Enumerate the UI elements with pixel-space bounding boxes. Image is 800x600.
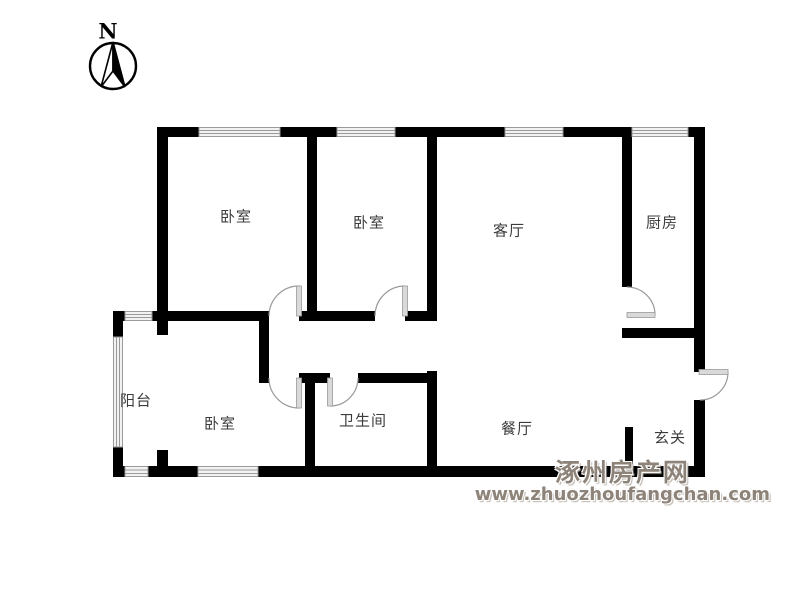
door-arc xyxy=(269,286,299,316)
wall-segment xyxy=(563,127,632,137)
wall-segment xyxy=(427,127,437,321)
door-leaf xyxy=(403,286,408,316)
watermark-site-name: 涿州房产网 xyxy=(475,460,770,486)
watermark: 涿州房产网 www.zhuozhoufangchan.com xyxy=(475,460,770,505)
floorplan-page: N 卧室 卧室 客厅 厨房 阳台 卧室 卫生间 餐厅 玄关 涿州房产网 www.… xyxy=(0,0,800,600)
room-label-bedroom-2: 卧室 xyxy=(353,212,385,233)
compass-north-label: N xyxy=(98,19,117,44)
door-leaf xyxy=(297,378,302,408)
compass-needle-left xyxy=(101,42,113,87)
wall-segment xyxy=(358,373,437,383)
door-arc xyxy=(330,378,358,406)
window xyxy=(199,128,280,137)
door-leaf xyxy=(328,378,333,406)
window xyxy=(632,128,688,137)
door-arc xyxy=(627,287,655,315)
room-label-bedroom-3: 卧室 xyxy=(204,413,236,434)
doors xyxy=(269,286,728,408)
door-arc xyxy=(375,286,405,316)
windows xyxy=(114,128,689,477)
door-leaf xyxy=(297,286,302,316)
walls xyxy=(113,127,705,477)
window xyxy=(337,128,395,137)
wall-segment xyxy=(148,466,198,477)
room-label-balcony: 阳台 xyxy=(120,390,152,411)
floorplan-drawing xyxy=(0,0,800,600)
room-label-bathroom: 卫生间 xyxy=(339,410,387,431)
wall-segment xyxy=(307,127,317,321)
room-label-bedroom-1: 卧室 xyxy=(220,206,252,227)
door-leaf xyxy=(699,370,728,375)
wall-segment xyxy=(157,450,168,477)
wall-segment xyxy=(113,311,123,337)
wall-segment xyxy=(113,447,123,477)
room-label-kitchen: 厨房 xyxy=(646,212,678,233)
wall-segment xyxy=(694,127,705,372)
wall-segment xyxy=(622,328,705,338)
compass xyxy=(90,42,136,89)
window xyxy=(125,467,148,477)
window xyxy=(198,467,258,477)
room-label-entry-hall: 玄关 xyxy=(654,427,686,448)
door-arc xyxy=(700,372,728,400)
wall-segment xyxy=(427,371,437,477)
window xyxy=(125,312,152,321)
door-arc xyxy=(269,378,299,408)
window xyxy=(505,128,563,137)
wall-segment xyxy=(259,311,269,383)
door-leaf xyxy=(627,313,655,318)
room-label-living-room: 客厅 xyxy=(493,220,525,241)
watermark-site-url: www.zhuozhoufangchan.com xyxy=(475,486,770,505)
wall-segment xyxy=(157,127,168,335)
room-label-dining-room: 餐厅 xyxy=(501,418,533,439)
compass-needle-right xyxy=(113,42,125,87)
wall-segment xyxy=(305,373,315,477)
wall-segment xyxy=(622,127,632,287)
wall-segment xyxy=(152,311,269,321)
wall-segment xyxy=(395,127,505,137)
